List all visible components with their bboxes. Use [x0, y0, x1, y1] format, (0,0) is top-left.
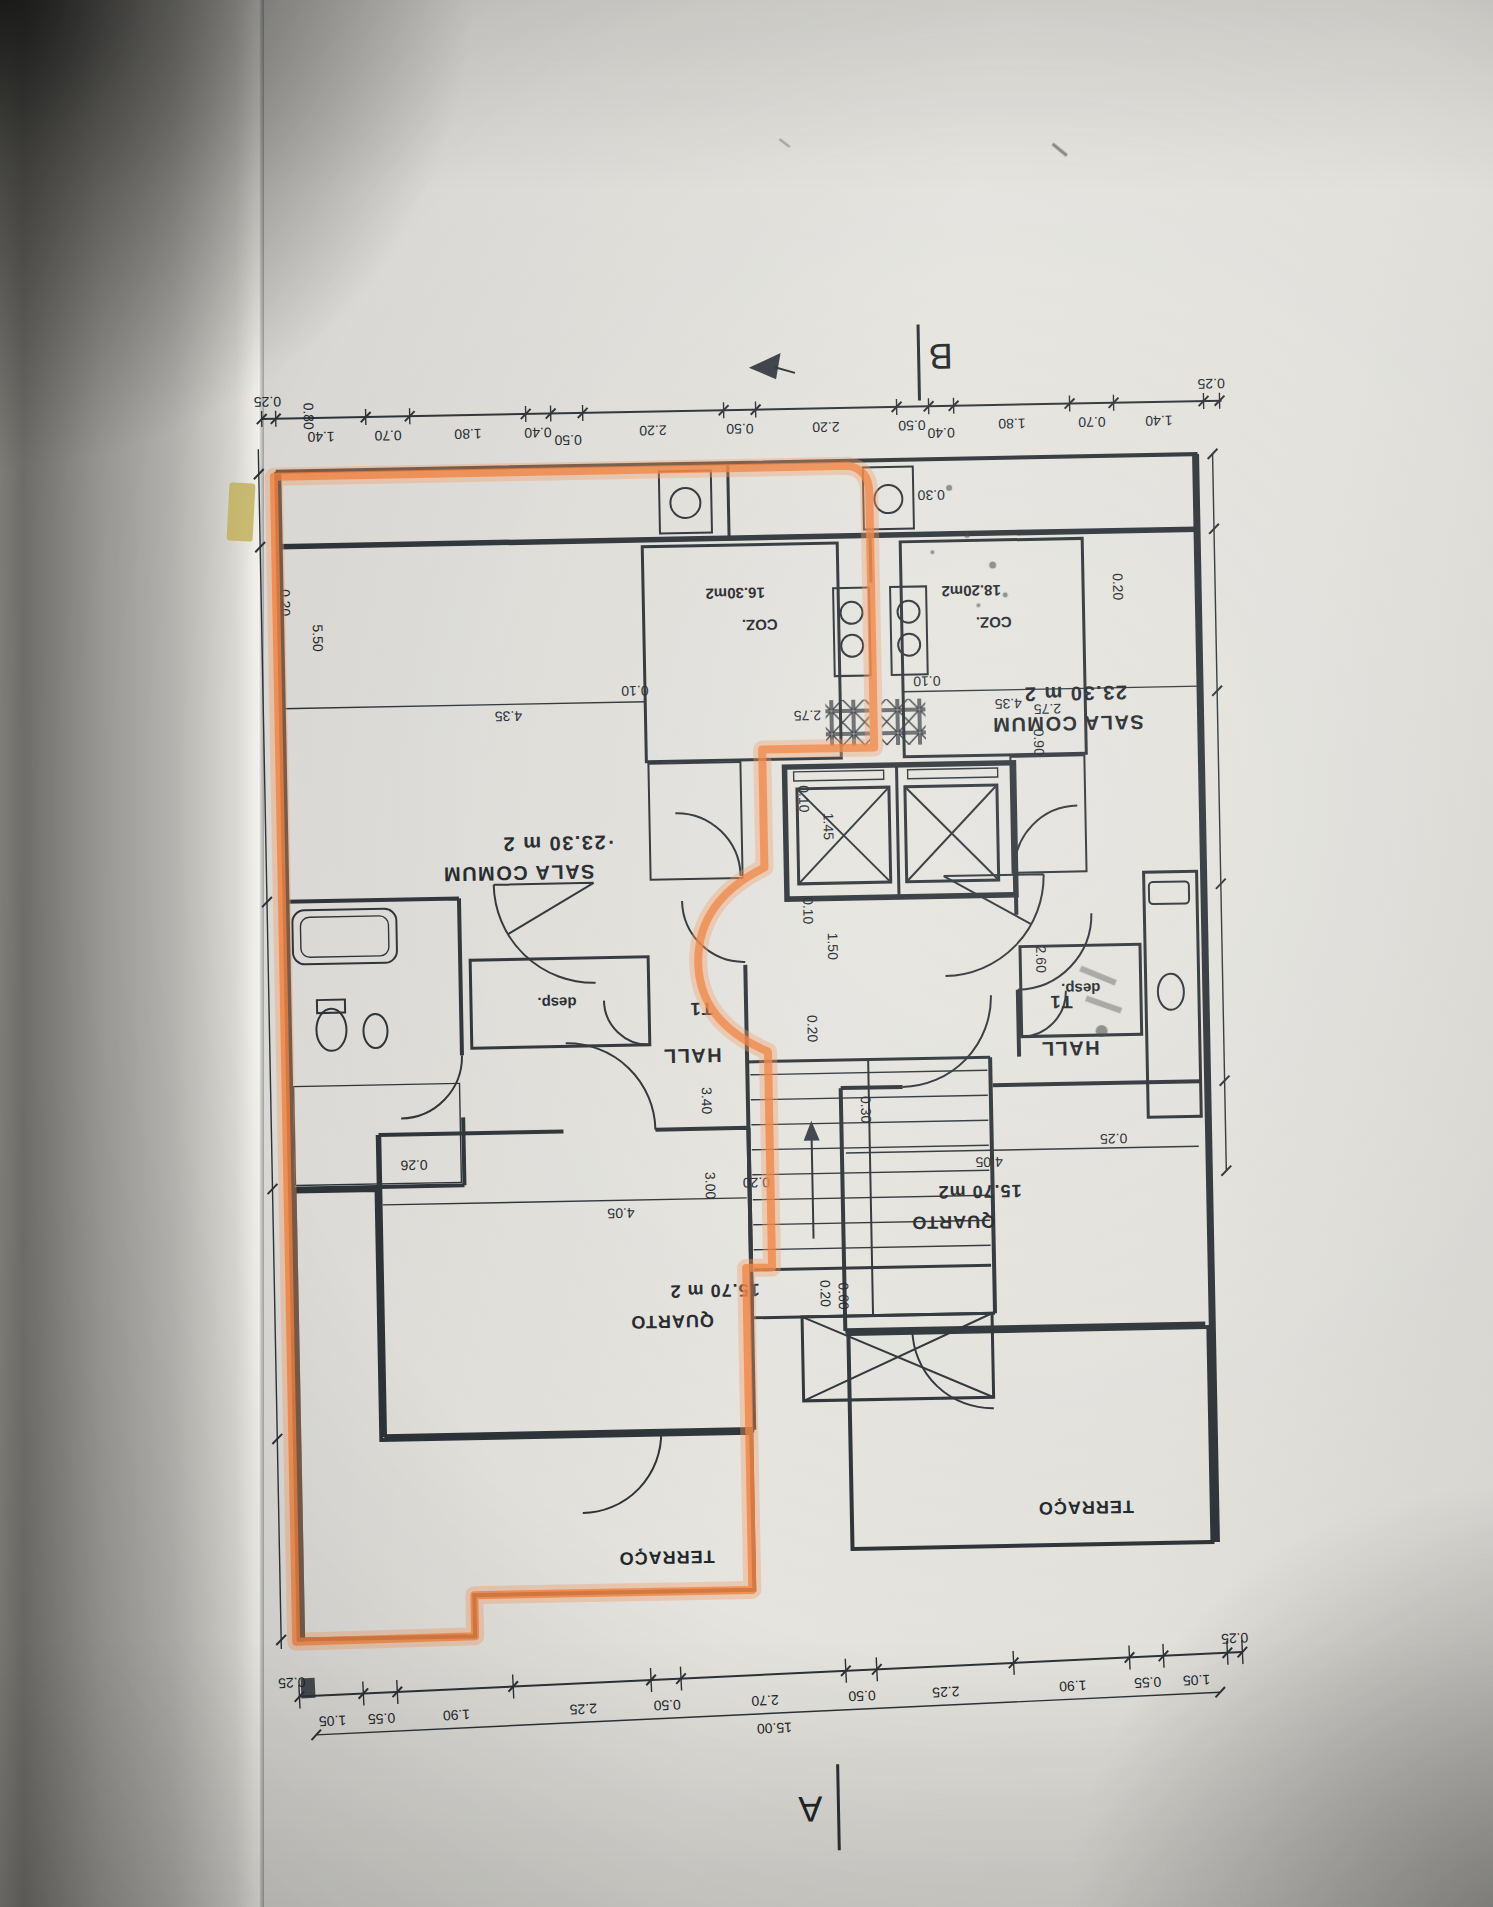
room-label-sala-left: SALA COMUM	[442, 861, 594, 886]
laundry-tank-left	[659, 470, 712, 533]
ruler-label: 1.80	[998, 415, 1026, 432]
dim-label: 3.40	[699, 1087, 716, 1115]
ruler-label: 0.40	[927, 425, 955, 442]
section-a-letter: A	[798, 1789, 823, 1830]
room-label-quarto-right: QUARTO	[911, 1211, 995, 1233]
ruler-label: 2.20	[639, 422, 667, 439]
room-label-desp-right: desp.	[1061, 980, 1101, 998]
ruler-label: 0.70	[1078, 414, 1106, 431]
dim-label: 0.20	[804, 1015, 821, 1043]
photographed-floor-plan-page: 0.25 1.40 0.70 1.80 0.40 0.50 2.20 0.50 …	[0, 0, 1493, 1907]
room-label-terraco-right: TERRAÇO	[1038, 1497, 1134, 1519]
ruler-label: 1.05	[318, 1712, 346, 1729]
dim-label: 4.05	[607, 1205, 635, 1222]
room-label-hall-right: HALL	[1040, 1037, 1100, 1060]
terrace-right	[848, 1324, 1212, 1549]
room-label-coz-right: COZ.	[976, 614, 1012, 632]
room-label-hall-left: HALL	[662, 1044, 722, 1067]
ruler-label: 1.90	[1059, 1678, 1087, 1695]
ruler-label: 0.70	[374, 427, 402, 444]
dim-label: 3.00	[702, 1172, 719, 1200]
ruler-label: 1.40	[1145, 413, 1173, 430]
dim-label: 0.30	[917, 487, 945, 504]
north-arrow-icon	[749, 353, 795, 380]
ruler-label: 1.05	[1182, 1672, 1210, 1689]
terrace-left	[295, 1183, 756, 1640]
dim-label: 0.60	[835, 1282, 852, 1310]
dim-label: 0.10	[796, 785, 813, 813]
elevator-shaft-right	[905, 785, 999, 882]
dim-label: 1.45	[820, 812, 837, 840]
ruler-label: 0.25	[253, 394, 281, 411]
dim-label: 0.90	[1031, 728, 1048, 756]
dim-line-sala-left	[282, 702, 645, 709]
ruler-label: 1.40	[307, 429, 335, 446]
floor-plan-rotation-wrapper: 0.25 1.40 0.70 1.80 0.40 0.50 2.20 0.50 …	[0, 0, 1493, 1907]
counter-right	[881, 698, 926, 745]
dim-label: 5.50	[310, 624, 327, 652]
ruler-label: 0.55	[367, 1710, 395, 1727]
stair-direction-arrow	[803, 1121, 821, 1239]
elevator-core	[784, 763, 1015, 899]
section-marker-b: B	[748, 324, 953, 404]
ruler-label: 0.50	[653, 1697, 681, 1714]
ruler-label: 0.55	[1134, 1674, 1162, 1691]
dim-label: 1.50	[825, 932, 842, 960]
dim-label: 0.10	[621, 683, 649, 700]
bidet	[363, 1014, 388, 1048]
bottom-dimension-ruler: 0.25 1.05 0.55 1.90 2.25 0.50 2.70 0.50 …	[278, 1630, 1252, 1760]
ruler-label: 0.50	[898, 417, 926, 434]
bedroom-right	[839, 991, 1205, 1331]
ruler-label: 0.50	[848, 1687, 876, 1704]
sala-door-fan-right	[944, 874, 1046, 976]
dim-label: 0.26	[400, 1157, 428, 1174]
toilet	[316, 1000, 347, 1052]
dim-label: 0.25	[1100, 1131, 1128, 1148]
section-b-letter: B	[928, 336, 953, 377]
highlighter-outline-left-unit	[274, 465, 891, 1641]
room-label-quarto-left: QUARTO	[630, 1311, 714, 1333]
total-width-label: 15.00	[756, 1719, 792, 1737]
ruler-label: 2.20	[812, 419, 840, 436]
dim-label: 4.05	[975, 1154, 1003, 1171]
floor-plan-drawing: 0.25 1.40 0.70 1.80 0.40 0.50 2.20 0.50 …	[0, 0, 1493, 1907]
ruler-label: 2.25	[932, 1683, 960, 1700]
ruler-label: 0.50	[554, 432, 582, 449]
room-label-terraco-left: TERRAÇO	[618, 1547, 714, 1569]
room-label-coz-area-right: 18.20m2	[941, 582, 1001, 600]
dim-label: 4.35	[494, 708, 522, 725]
dim-label: 2.75	[1033, 701, 1061, 718]
dim-label: 0.20	[1110, 573, 1127, 601]
ruler-label: 0.50	[726, 421, 754, 438]
bathtub	[292, 909, 397, 965]
ruler-label: 0.25	[1197, 376, 1225, 393]
room-label-coz-left: COZ.	[742, 616, 778, 634]
dim-label: 0.80	[300, 402, 317, 430]
ruler-label: 1.80	[454, 426, 482, 443]
room-label-sala-area-left: ·23.30 m 2	[502, 831, 614, 855]
ruler-label: 2.25	[569, 1701, 597, 1718]
ruler-label: 1.90	[442, 1707, 470, 1724]
room-label-coz-area-left: 16.30m2	[705, 584, 765, 602]
stove-right	[890, 586, 928, 675]
room-label-desp-left: desp.	[537, 994, 577, 1012]
room-label-quarto-area-right: 15.70 m2	[937, 1181, 1021, 1203]
sala-door-fan-left	[494, 883, 596, 985]
dim-label: 2.60	[1033, 945, 1050, 973]
bedroom-left	[377, 1040, 754, 1437]
dim-label: 0.10	[913, 673, 941, 690]
ruler-label: 0.25	[278, 1674, 306, 1691]
section-marker-a: A	[798, 1764, 840, 1851]
dim-label: 0.20	[817, 1280, 834, 1308]
dim-label: 0.30	[858, 1096, 875, 1124]
room-label-sala-right: SALA COMUM	[992, 711, 1144, 736]
ruler-label: 0.25	[1221, 1630, 1249, 1647]
top-dimension-ruler: 0.25 1.40 0.70 1.80 0.40 0.50 2.20 0.50 …	[253, 376, 1225, 455]
dim-label: 0.10	[800, 897, 817, 925]
right-vertical-dim-line	[1207, 449, 1231, 1176]
ruler-label: 0.40	[524, 425, 552, 442]
bathroom-left	[286, 898, 464, 1188]
ruler-label: 2.70	[751, 1692, 779, 1709]
dim-label: 4.35	[994, 696, 1022, 713]
dim-label: 2.75	[794, 707, 822, 724]
